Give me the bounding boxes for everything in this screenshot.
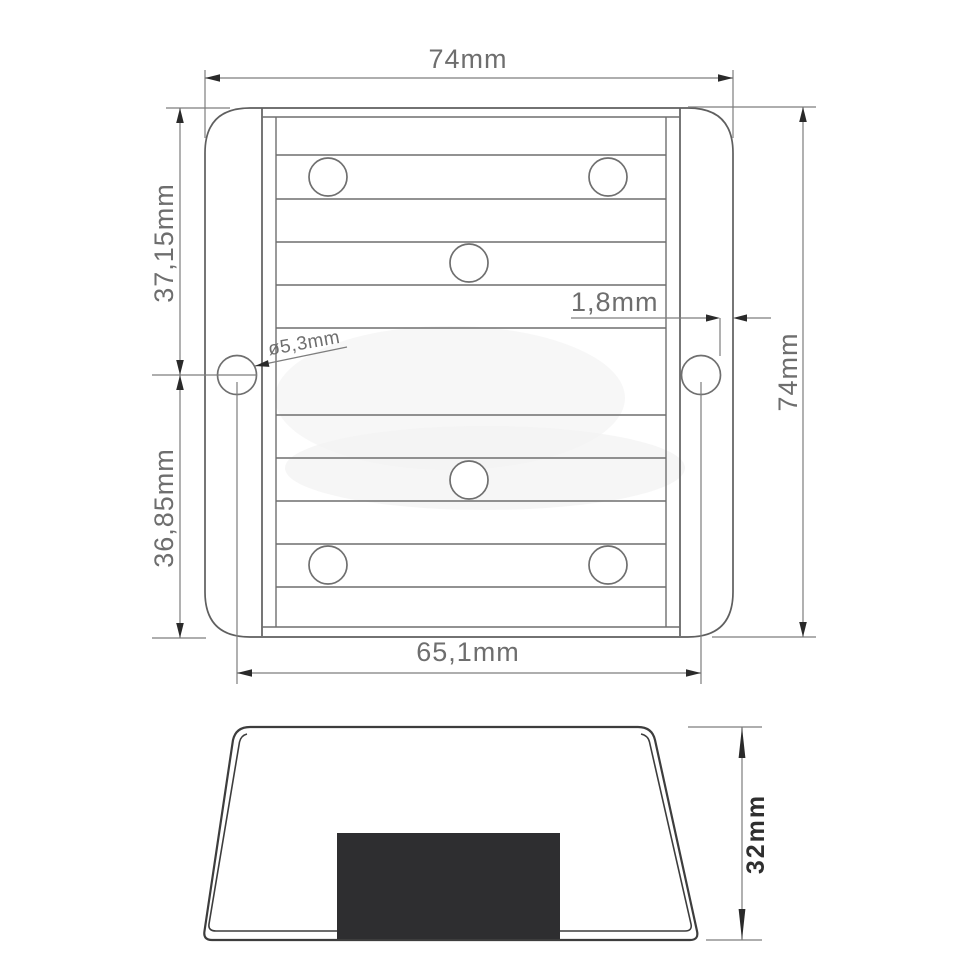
arrowhead [176,623,184,638]
dim-label-hole-spacing: 65,1mm [416,637,520,667]
arrowhead [686,669,701,677]
arrowhead [799,622,807,637]
screw-hole [309,158,347,196]
arrowhead [176,375,184,390]
arrowhead [237,669,252,677]
arrowhead [718,74,733,82]
arrowhead [205,74,220,82]
arrowhead [739,727,746,758]
arrowhead [176,360,184,375]
dim-label-edge-gap: 1,8mm [571,287,659,317]
arrowhead [706,314,720,321]
dim-label-overall-height: 74mm [773,332,803,411]
arrowhead [176,108,184,123]
screw-hole [589,158,627,196]
arrowhead [799,107,807,122]
screw-hole [450,244,488,282]
screw-hole [450,461,488,499]
dim-lower-offset: 36,85mm [149,375,206,638]
dimension-drawing: 74mm 74mm 37,15mm 36,85mm 65,1mm [0,0,960,960]
side-view-inner-wall-left [209,734,337,931]
screw-hole [309,546,347,584]
dim-edge-gap: 1,8mm [571,287,771,356]
watermark-blob [285,426,685,510]
connector-block [337,833,560,939]
arrowhead [733,314,747,321]
dim-side-height: 32mm [688,727,770,940]
screw-hole [589,546,627,584]
side-view [204,727,697,940]
dim-label-overall-width: 74mm [428,44,507,74]
side-view-inner-wall-right [560,734,691,931]
dim-label-lower-offset: 36,85mm [149,448,179,568]
arrowhead [739,909,746,940]
dim-upper-offset: 37,15mm [149,108,257,375]
dim-label-upper-offset: 37,15mm [149,183,179,303]
technical-drawing-page: 74mm 74mm 37,15mm 36,85mm 65,1mm [0,0,960,960]
dim-label-side-height: 32mm [742,794,770,874]
dim-overall-width: 74mm [205,44,733,138]
